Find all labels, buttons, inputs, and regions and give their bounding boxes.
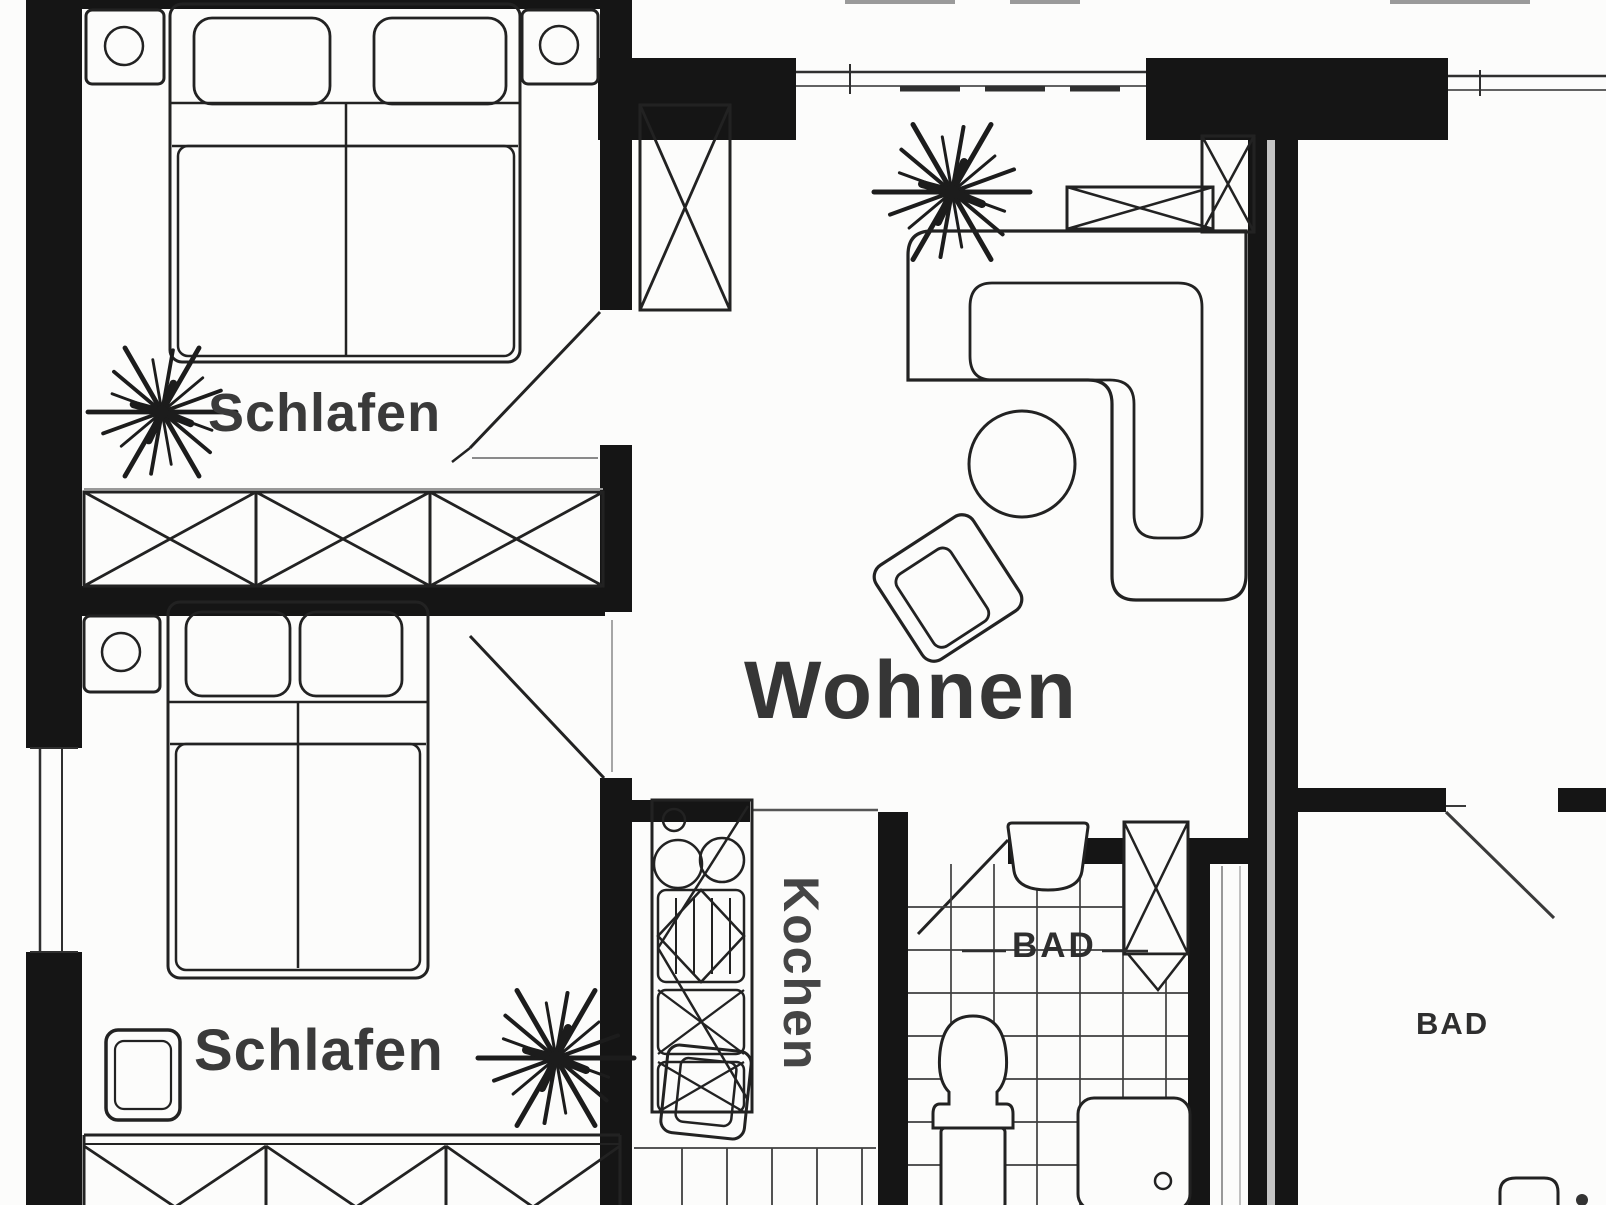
toilet-icon <box>933 1016 1013 1205</box>
wardrobe-icon <box>84 1135 620 1205</box>
hall-chair-icon <box>660 1044 753 1140</box>
room-label-bedroom-top: Schlafen <box>208 386 441 440</box>
door-bedroom-top <box>452 312 600 462</box>
nightstand-icon <box>522 10 598 84</box>
floor-plan: Schlafen Schlafen Wohnen Kochen BAD BAD <box>0 0 1606 1205</box>
shaft-lines <box>1222 866 1240 1205</box>
room-label-bedroom-bottom: Schlafen <box>194 1022 444 1080</box>
sink-icon <box>700 838 744 882</box>
room-label-bathroom-neighbor: BAD <box>1416 1008 1489 1039</box>
double-bed-icon <box>168 602 428 978</box>
wardrobe-icon <box>84 489 603 586</box>
appliance-icon <box>658 1062 744 1112</box>
armchair-icon <box>869 509 1027 666</box>
nightstand-icon <box>86 10 164 84</box>
window-living-top <box>796 64 1146 94</box>
window-top-right <box>1448 70 1606 96</box>
palm-icon <box>874 125 1030 260</box>
washbasin-icon <box>1008 823 1088 890</box>
party-wall-core <box>1267 140 1275 1205</box>
shower-icon <box>1078 1098 1190 1205</box>
neighbor-fixture-partial <box>1500 1178 1588 1205</box>
window-left-bedroom2 <box>30 748 78 952</box>
kitchen-counter <box>652 800 878 1112</box>
hall-tiles <box>634 1148 876 1205</box>
door-neighbor-bath <box>1446 806 1554 918</box>
bath-cabinet-icon <box>1124 822 1188 990</box>
sideboard-icon <box>1067 187 1213 229</box>
sink-icon <box>654 840 702 888</box>
stool-icon <box>106 1030 180 1120</box>
room-label-bathroom: BAD <box>1012 928 1097 963</box>
tall-wardrobe-icon <box>1202 136 1254 232</box>
corner-sofa-icon <box>908 231 1246 600</box>
door-bedroom-bottom <box>470 620 612 778</box>
nightstand-icon <box>84 616 160 692</box>
room-label-kitchen: Kochen <box>776 876 826 1071</box>
round-table-icon <box>969 411 1075 517</box>
double-bed-icon <box>170 4 520 362</box>
room-label-living: Wohnen <box>744 650 1078 732</box>
appliance-icon <box>658 990 744 1054</box>
